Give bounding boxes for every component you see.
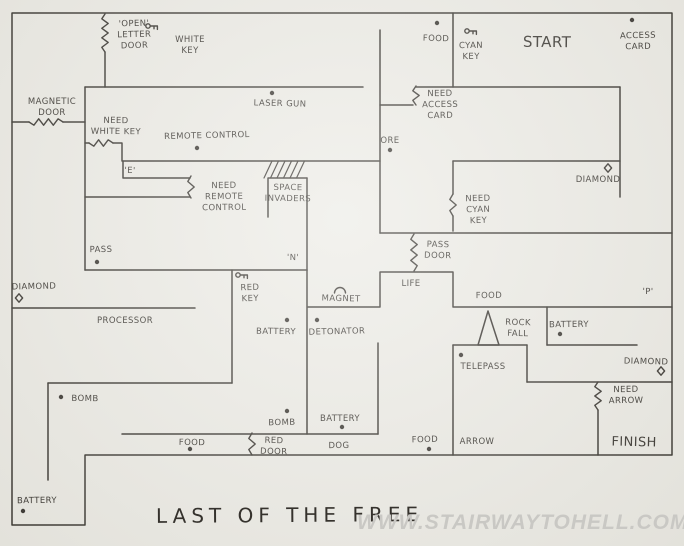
item-battery-mid	[340, 425, 344, 429]
hatch-marks	[297, 161, 305, 178]
item-detonator	[315, 318, 319, 322]
lbl-p-pad: 'P'	[642, 287, 653, 297]
item-remote-control	[195, 146, 199, 150]
door-open-letter	[102, 14, 108, 52]
door-magnetic	[29, 119, 63, 125]
item-battery-bottom-left	[21, 509, 25, 513]
lbl-battery-rockfall: BATTERY	[549, 320, 589, 330]
door-need-remote-control	[188, 176, 194, 198]
lbl-remote-control: REMOTE CONTROL	[164, 130, 250, 142]
item-bomb-mid	[285, 409, 289, 413]
scanned-map-page: 'OPEN'LETTERDOORWHITEKEYFOODCYANKEYSTART…	[0, 0, 684, 546]
lbl-food-bottom-left: FOOD	[179, 438, 206, 448]
lbl-diamond-mid: DIAMOND	[576, 175, 621, 185]
magnet-icon	[335, 288, 346, 294]
door-need-cyan-key	[450, 194, 456, 216]
lbl-need-remote-control: NEEDREMOTECONTROL	[202, 181, 247, 214]
lbl-access-card: ACCESSCARD	[620, 31, 657, 53]
watermark-text: WWW.STAIRWAYTOHELL.COM	[357, 511, 684, 535]
lbl-need-access-card: NEEDACCESSCARD	[422, 89, 458, 121]
lbl-food-p-room: FOOD	[476, 291, 503, 301]
lbl-battery-mid: BATTERY	[320, 414, 360, 424]
door-pass	[411, 234, 417, 271]
diamond-mid-icon	[604, 164, 611, 172]
item-bomb-left	[59, 395, 63, 399]
lbl-diamond-left: DIAMOND	[12, 281, 57, 292]
hatch-marks	[264, 161, 272, 178]
item-battery-rockfall-room	[558, 332, 562, 336]
diamond-left-icon	[15, 294, 22, 302]
lbl-red-door: REDDOOR	[260, 436, 288, 458]
item-pass	[95, 260, 99, 264]
lbl-white-key: WHITEKEY	[175, 35, 205, 56]
lbl-life: LIFE	[401, 279, 420, 289]
lbl-magnet: MAGNET	[321, 294, 361, 305]
lbl-ore: ORE	[380, 136, 399, 146]
item-battery-redkey-room	[285, 318, 289, 322]
door-red	[249, 433, 255, 455]
lbl-n-pad: 'N'	[287, 253, 299, 263]
item-telepass	[459, 353, 463, 357]
lbl-space-invaders: SPACEINVADERS	[265, 183, 312, 205]
map-svg: 'OPEN'LETTERDOORWHITEKEYFOODCYANKEYSTART…	[0, 0, 684, 546]
door-need-arrow	[595, 382, 601, 410]
lbl-need-white-key: NEEDWHITE KEY	[91, 116, 142, 138]
lbl-magnetic-door: MAGNETICDOOR	[28, 97, 76, 118]
lbl-red-key: REDKEY	[240, 283, 260, 304]
lbl-open-letter-door: 'OPEN'LETTERDOOR	[117, 19, 152, 52]
lbl-e-pad: 'E'	[124, 166, 135, 176]
lbl-telepass: TELEPASS	[459, 362, 505, 372]
item-ore	[388, 148, 392, 152]
door-need-access-card	[413, 86, 419, 105]
lbl-bomb-left: BOMB	[71, 394, 98, 404]
item-laser-gun	[270, 91, 274, 95]
lbl-arrow: ARROW	[460, 437, 495, 447]
lbl-battery-bottom-left: BATTERY	[17, 496, 57, 506]
cyan-key-icon	[465, 29, 477, 35]
hatch-marks	[277, 161, 285, 178]
item-food-top	[435, 21, 439, 25]
lbl-rock-fall: ROCKFALL	[505, 318, 531, 340]
lbl-laser-gun: LASER GUN	[253, 98, 306, 109]
hatch-marks	[271, 161, 279, 178]
door-need-white-key	[89, 140, 113, 146]
lbl-cyan-key: CYANKEY	[459, 41, 483, 62]
red-key-icon	[236, 273, 248, 279]
diamond-bottom-icon	[657, 367, 664, 375]
lbl-detonator: DETONATOR	[308, 326, 365, 337]
rockfall-triangle	[478, 311, 499, 345]
lbl-need-cyan-key: NEEDCYANKEY	[465, 194, 491, 227]
lbl-food-bottom-mid: FOOD	[412, 435, 439, 446]
wall-remote-room-north	[113, 143, 380, 161]
hatch-marks	[290, 161, 298, 178]
lbl-diamond-bottom: DIAMOND	[624, 356, 669, 367]
lbl-finish: FINISH	[611, 434, 657, 450]
lbl-pass-door: PASSDOOR	[424, 240, 452, 262]
item-food-bottom-mid	[427, 447, 431, 451]
item-access-card	[630, 18, 634, 22]
lbl-dog: DOG	[328, 441, 349, 451]
hatch-marks	[284, 161, 292, 178]
lbl-pass: PASS	[90, 245, 113, 255]
lbl-processor: PROCESSOR	[97, 316, 153, 326]
wall-life-notch	[308, 272, 672, 307]
lbl-food-top: FOOD	[423, 34, 450, 45]
lbl-start: START	[523, 33, 572, 52]
lbl-battery-redkey: BATTERY	[256, 327, 296, 337]
lbl-need-arrow: NEEDARROW	[609, 385, 644, 406]
lbl-bomb-mid: BOMB	[268, 418, 295, 429]
